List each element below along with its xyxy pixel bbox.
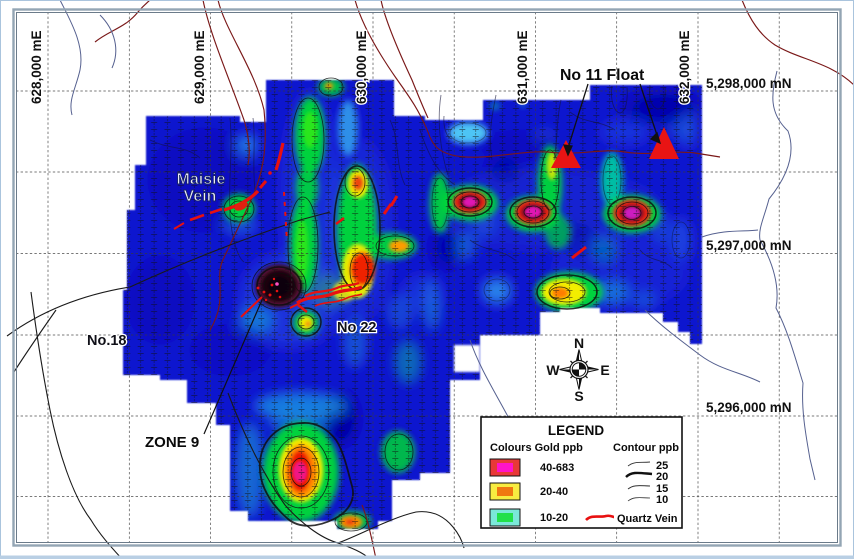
svg-text:10: 10	[656, 494, 668, 506]
svg-text:5,298,000 mN: 5,298,000 mN	[706, 76, 792, 91]
svg-text:Contour ppb: Contour ppb	[613, 442, 679, 454]
svg-text:No 22: No 22	[337, 320, 377, 336]
svg-text:E: E	[600, 362, 609, 378]
svg-text:631,000 mE: 631,000 mE	[515, 30, 530, 104]
svg-text:Quartz Vein: Quartz Vein	[617, 513, 678, 525]
svg-text:10-20: 10-20	[540, 512, 568, 524]
svg-text:Vein: Vein	[184, 188, 217, 205]
svg-text:40-683: 40-683	[540, 462, 574, 474]
svg-text:S: S	[574, 388, 583, 404]
svg-text:629,000 mE: 629,000 mE	[192, 30, 207, 104]
svg-text:No 11 Float: No 11 Float	[560, 67, 645, 84]
svg-text:No.18: No.18	[87, 333, 127, 349]
svg-text:Colours Gold ppb: Colours Gold ppb	[490, 442, 583, 454]
svg-text:5,297,000 mN: 5,297,000 mN	[706, 238, 792, 253]
svg-text:Maisie: Maisie	[177, 171, 226, 188]
svg-text:ZONE 9: ZONE 9	[145, 434, 199, 451]
svg-text:630,000 mE: 630,000 mE	[354, 30, 369, 104]
svg-text:N: N	[574, 335, 584, 351]
svg-text:20-40: 20-40	[540, 486, 568, 498]
svg-text:632,000 mE: 632,000 mE	[677, 30, 692, 104]
svg-text:LEGEND: LEGEND	[548, 423, 605, 438]
svg-text:5,296,000 mN: 5,296,000 mN	[706, 400, 792, 415]
svg-text:628,000 mE: 628,000 mE	[29, 30, 44, 104]
svg-text:W: W	[546, 362, 560, 378]
svg-text:20: 20	[656, 471, 668, 483]
